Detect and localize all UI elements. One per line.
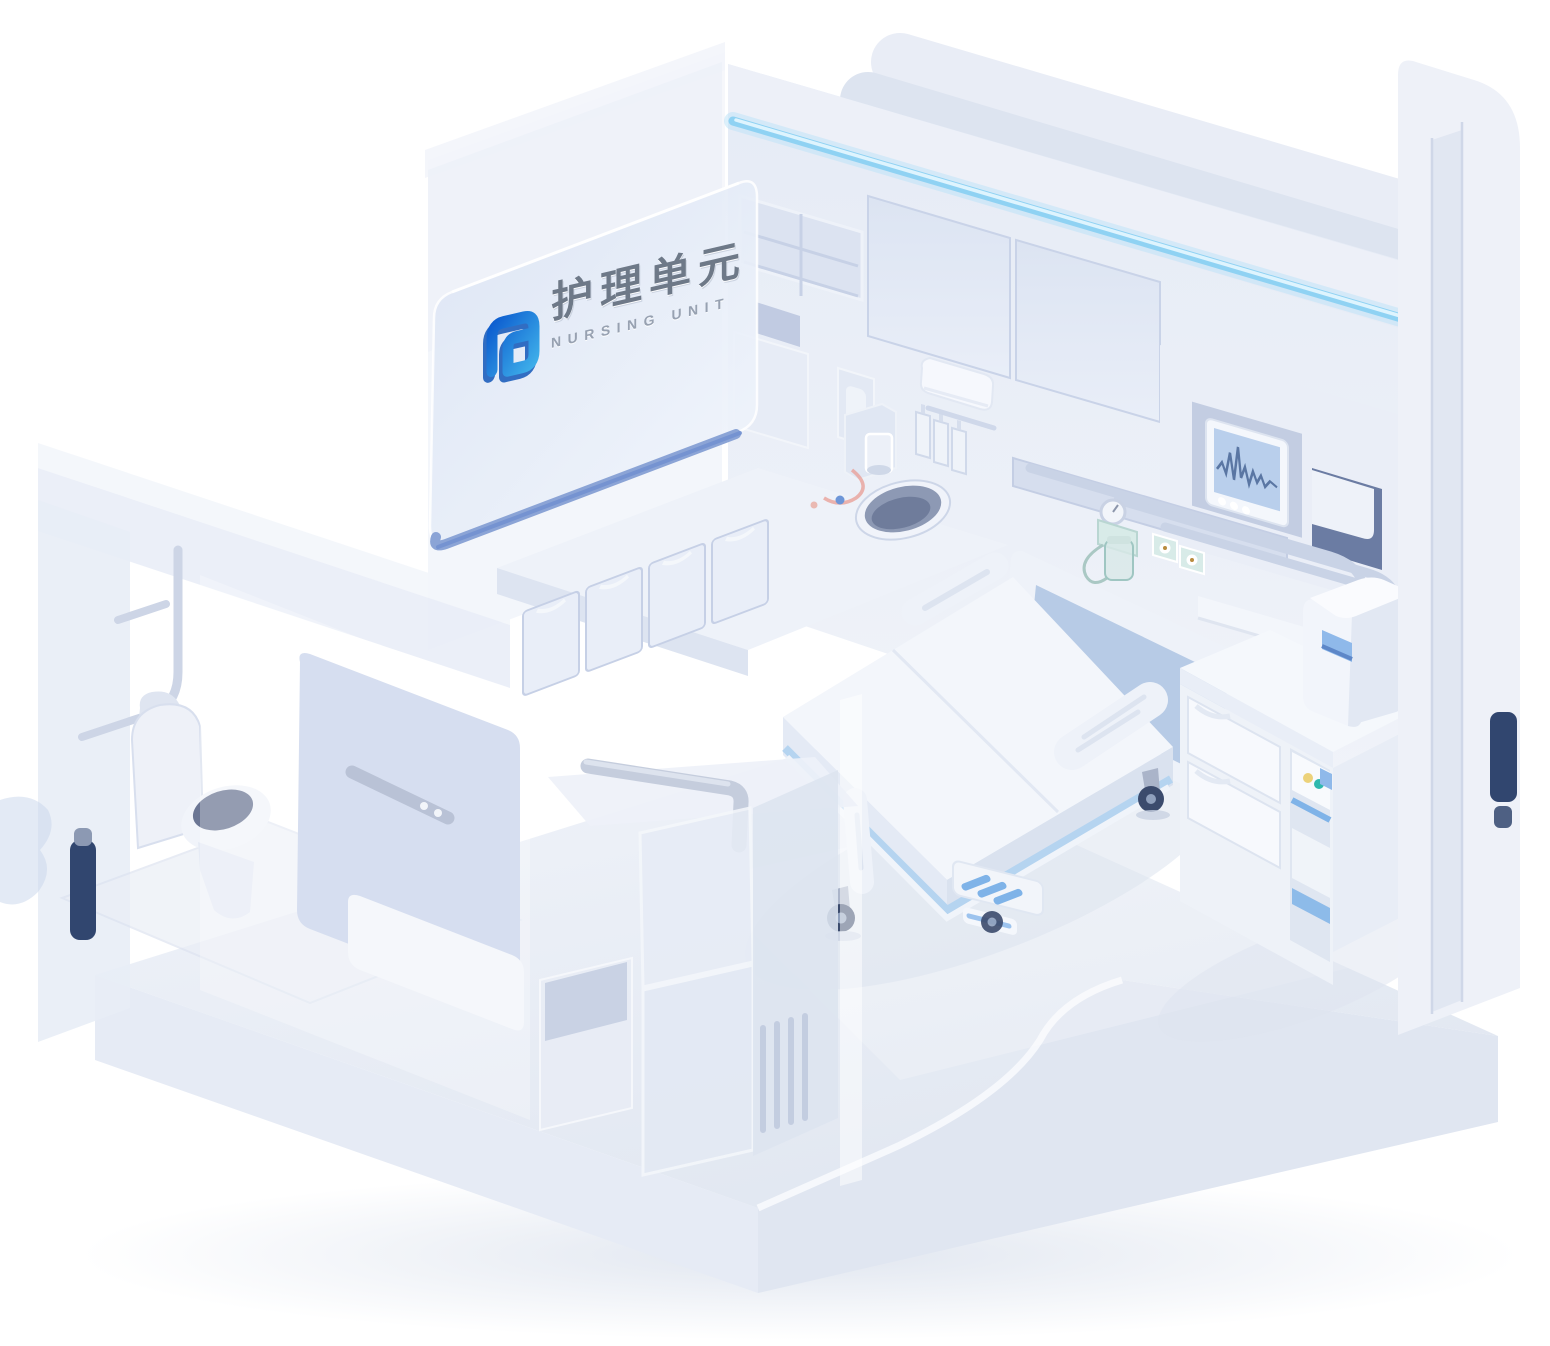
cup-base [867, 465, 891, 475]
isometric-room-scene [0, 0, 1550, 1346]
trash-bin [540, 958, 632, 1130]
bathroom-outer-wall [38, 500, 130, 1042]
navy-accent-cap [74, 828, 92, 846]
outlet-pin-1 [1163, 546, 1167, 550]
caster-mid [981, 911, 1003, 933]
humidifier-bottle [1105, 540, 1133, 580]
red-dot [811, 502, 818, 509]
locker-upper [640, 808, 753, 987]
humidifier-cap [1107, 536, 1131, 544]
right-wall-frame [1398, 61, 1520, 1035]
navy-accent-right [1490, 712, 1517, 802]
blue-dot [836, 496, 845, 505]
navy-accent-left [70, 840, 96, 940]
device-button-yellow [1303, 773, 1313, 783]
locker-lower [643, 965, 753, 1175]
nursing-unit-room-illustration: 护理单元 NURSING UNIT [0, 0, 1550, 1346]
nursing-unit-logo-icon [489, 315, 534, 379]
frame-inner-slot [1432, 130, 1462, 1012]
outlet-pin-2 [1190, 558, 1194, 562]
cabinet-compartment [1290, 748, 1332, 962]
cup-dispenser [845, 404, 896, 480]
navy-accent-right-small [1494, 806, 1512, 828]
front-wall-edge [840, 694, 862, 1186]
air-purifier [1303, 578, 1410, 727]
